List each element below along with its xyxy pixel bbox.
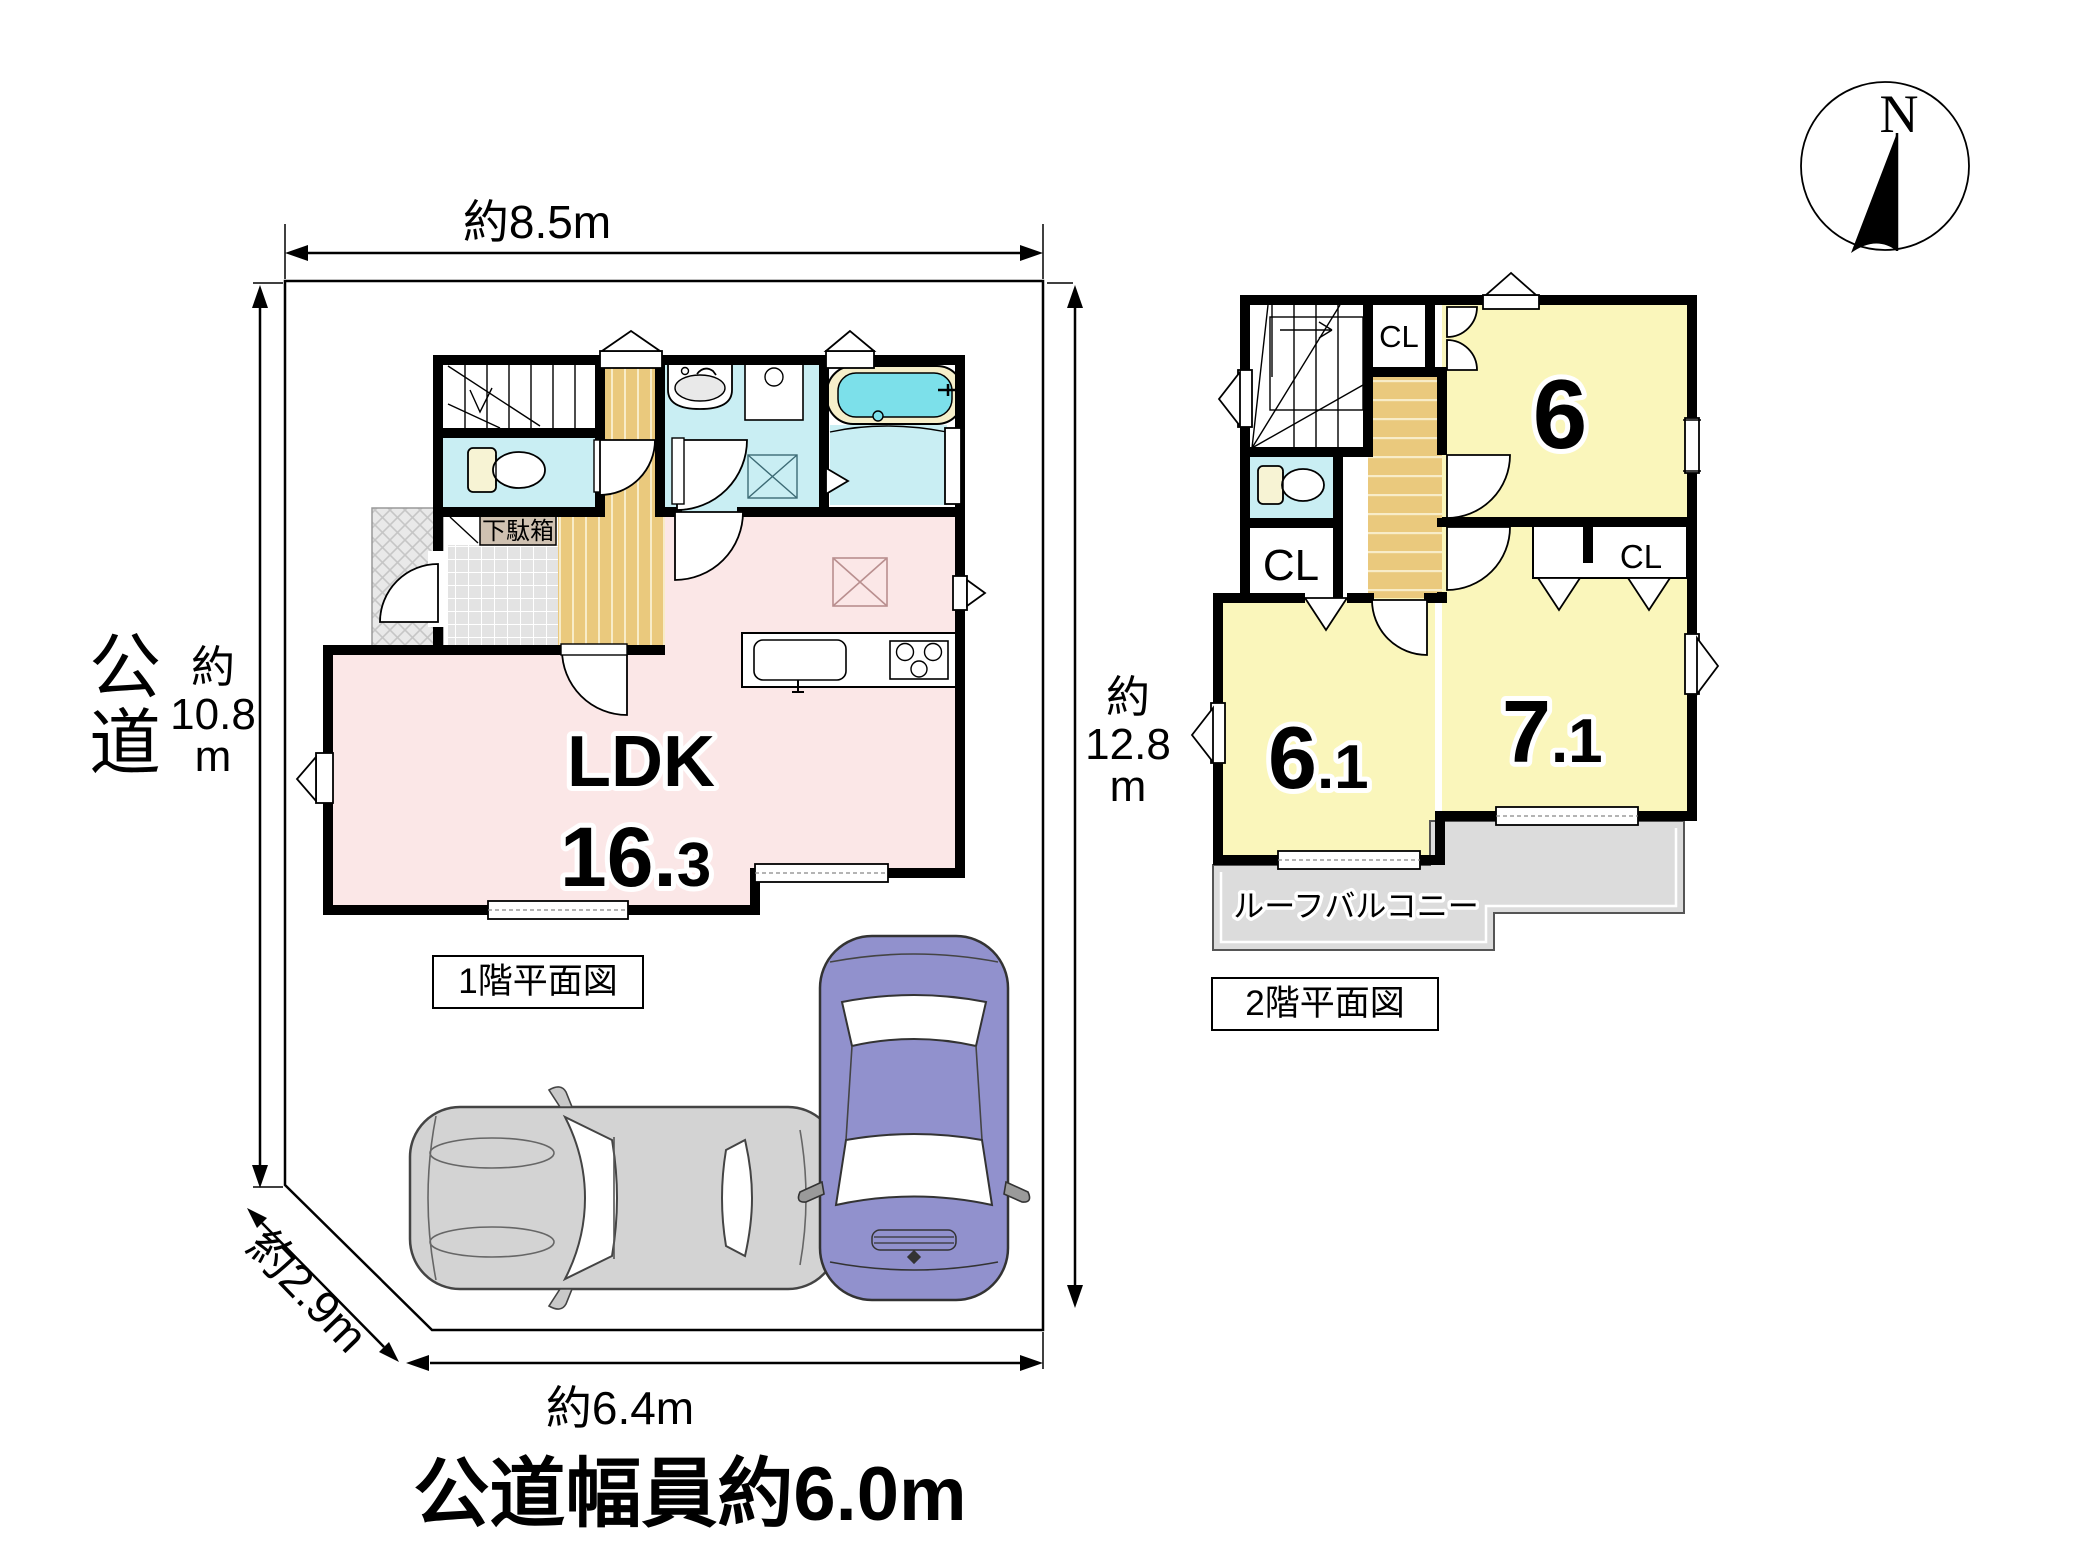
window-room61-bottom xyxy=(1278,851,1420,869)
dim-top-label: 約8.5m xyxy=(463,196,611,248)
vent-triangle-room6 xyxy=(1486,273,1536,295)
entry-tile-floor xyxy=(448,545,558,648)
hall2-floor xyxy=(1368,372,1442,598)
dim-left-l1: 約 xyxy=(191,643,235,692)
cl-left-label: CL xyxy=(1263,541,1319,590)
car-purple xyxy=(798,936,1029,1300)
dim-right-l3: m xyxy=(1110,762,1147,811)
balcony-label: ルーフバルコニー xyxy=(1233,889,1479,924)
road-label-left: 公 xyxy=(89,628,161,708)
window-ldk-bottom-right xyxy=(755,864,888,882)
cl-right-floor xyxy=(1533,524,1687,578)
second-floor-plan: CL CL CL 6 6.1 7.1 ルーフバルコニー 2階平面図 xyxy=(1192,273,1718,1030)
sink-icon xyxy=(668,363,732,409)
ldk-label: LDK xyxy=(567,722,715,802)
window-ldk-right xyxy=(953,576,967,610)
dim-right-l1: 約 xyxy=(1106,673,1150,722)
caption-1f: 1階平面図 xyxy=(433,956,643,1008)
shoe-cabinet-label: 下駄箱 xyxy=(482,518,554,545)
bathroom-lower-floor xyxy=(830,425,947,505)
north-compass: N xyxy=(1801,82,1969,253)
toilet-icon-2f xyxy=(1258,466,1324,504)
road-label-left2: 道 xyxy=(89,704,161,784)
dim-bottom-label: 約6.4m xyxy=(546,1382,694,1434)
caption-2f: 2階平面図 xyxy=(1212,978,1438,1030)
north-label: N xyxy=(1880,84,1919,144)
stove-icon xyxy=(890,641,948,679)
window-ldk-left xyxy=(316,753,333,803)
bathtub-icon xyxy=(827,366,963,432)
caption-2f-label: 2階平面図 xyxy=(1245,984,1404,1023)
caption-1f-label: 1階平面図 xyxy=(458,962,617,1001)
room6-label: 6 xyxy=(1533,359,1588,469)
window-room71-bottom xyxy=(1496,807,1638,825)
road-width-label: 公道幅員約6.0m xyxy=(413,1452,966,1537)
cl-top-label: CL xyxy=(1379,319,1419,354)
floorplan-drawing: 約8.5m 公 道 約 10.8 m 約 12.8 m 約2.9m 約6.4m … xyxy=(0,0,2082,1560)
kitchen-counter xyxy=(742,633,958,692)
dim-left-l3: m xyxy=(195,732,232,781)
car-gray xyxy=(410,1087,838,1309)
toilet-icon-1f xyxy=(468,448,545,492)
floorplan-page: 約8.5m 公 道 約 10.8 m 約 12.8 m 約2.9m 約6.4m … xyxy=(0,0,2082,1560)
washer-pan-icon xyxy=(745,362,803,420)
window-room6-right xyxy=(1685,418,1699,473)
cl-right-label: CL xyxy=(1620,538,1662,575)
